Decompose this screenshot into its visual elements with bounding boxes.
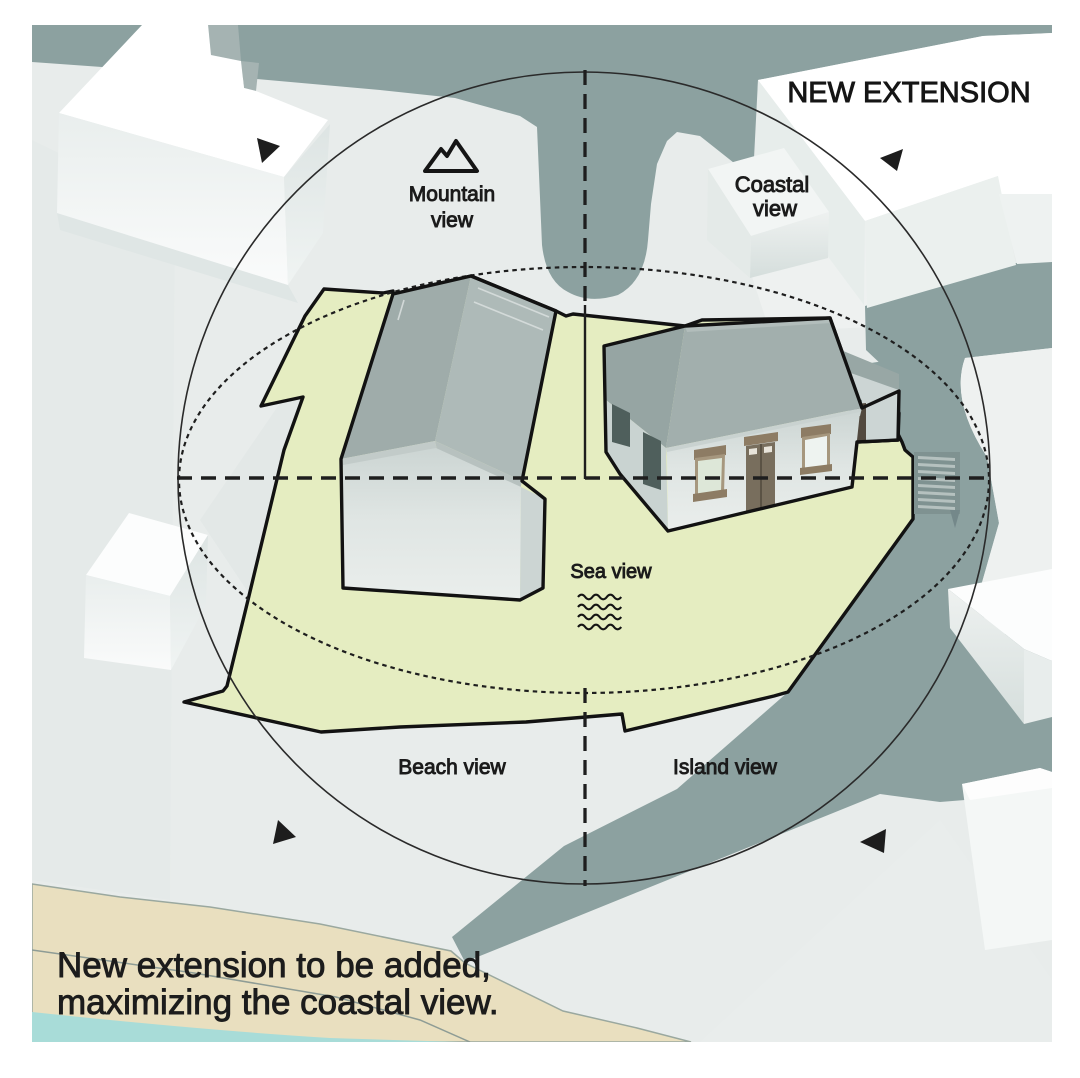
svg-text:Mountain: Mountain (409, 183, 495, 206)
svg-text:Island view: Island view (673, 756, 778, 779)
svg-text:view: view (431, 209, 474, 232)
svg-text:NEW EXTENSION: NEW EXTENSION (787, 77, 1030, 109)
svg-text:maximizing the coastal view.: maximizing the coastal view. (57, 983, 499, 1022)
svg-text:view: view (753, 196, 797, 221)
svg-text:Coastal: Coastal (735, 172, 810, 197)
svg-text:New extension to be added,: New extension to be added, (57, 946, 491, 985)
svg-text:Beach view: Beach view (398, 756, 506, 779)
svg-text:Sea view: Sea view (570, 561, 652, 583)
